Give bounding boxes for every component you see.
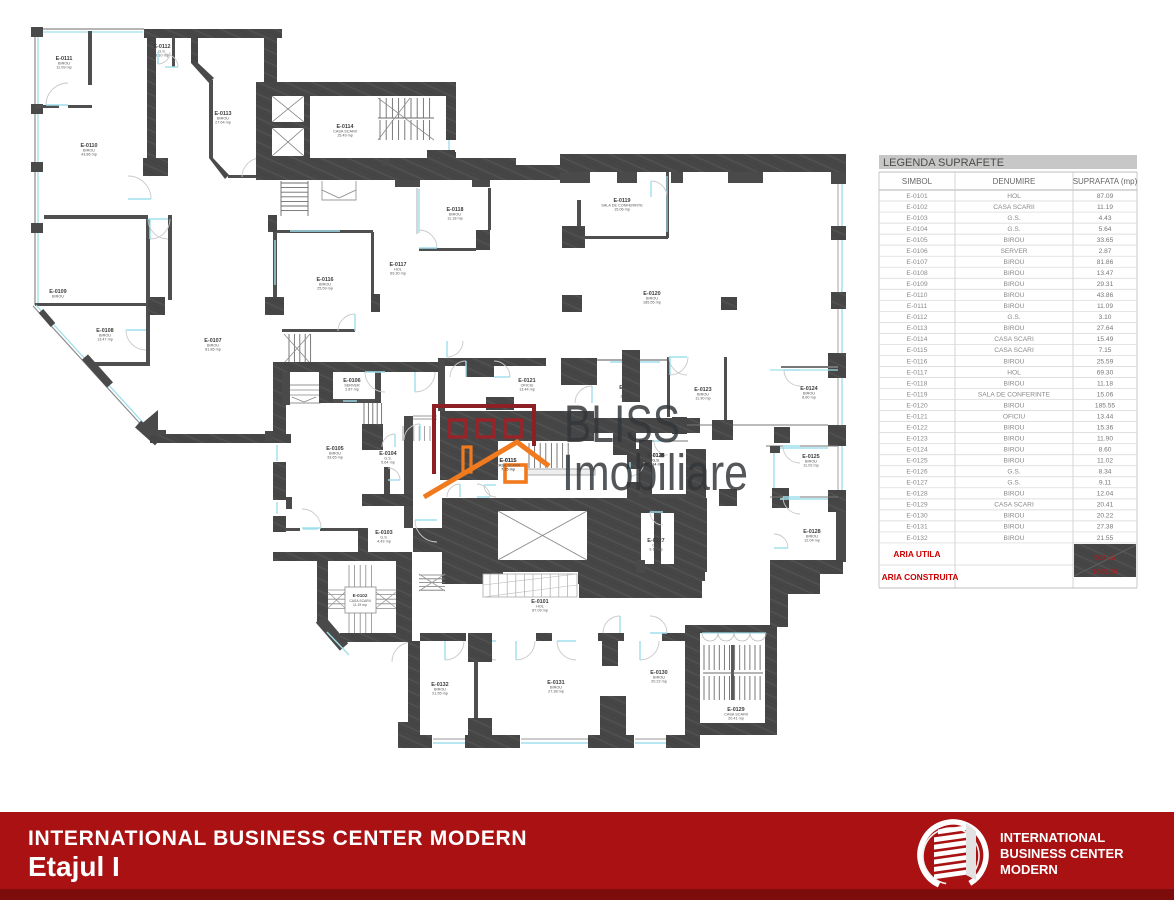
svg-text:69.30: 69.30 bbox=[1097, 369, 1114, 376]
svg-text:11.19: 11.19 bbox=[1097, 204, 1113, 211]
svg-text:15.06 mp: 15.06 mp bbox=[614, 208, 630, 212]
svg-text:BIROU: BIROU bbox=[1004, 524, 1025, 531]
svg-text:5.64 mp: 5.64 mp bbox=[381, 461, 395, 465]
svg-text:33.65: 33.65 bbox=[1097, 237, 1114, 244]
svg-text:2.87: 2.87 bbox=[1099, 248, 1112, 255]
svg-text:E-0108: E-0108 bbox=[906, 270, 928, 277]
svg-text:E-0116: E-0116 bbox=[907, 358, 928, 365]
svg-text:9.11: 9.11 bbox=[1099, 480, 1112, 487]
svg-text:20.41 mp: 20.41 mp bbox=[728, 717, 744, 721]
svg-text:BIROU: BIROU bbox=[1004, 292, 1025, 299]
svg-text:BIROU: BIROU bbox=[1004, 380, 1025, 387]
svg-text:13.47: 13.47 bbox=[1097, 270, 1114, 277]
svg-text:E-0124: E-0124 bbox=[906, 447, 928, 454]
svg-text:E-0123: E-0123 bbox=[906, 436, 928, 443]
svg-text:11.90 mp: 11.90 mp bbox=[695, 397, 711, 401]
svg-text:BIROU: BIROU bbox=[1004, 270, 1025, 277]
svg-text:BIROU: BIROU bbox=[52, 295, 64, 299]
svg-text:E-0115: E-0115 bbox=[907, 347, 928, 354]
svg-text:BUSINESS CENTER: BUSINESS CENTER bbox=[1000, 846, 1124, 861]
svg-text:E-0109: E-0109 bbox=[906, 281, 928, 288]
svg-text:E-0122: E-0122 bbox=[906, 425, 928, 432]
svg-text:11.02 mp: 11.02 mp bbox=[803, 464, 819, 468]
svg-text:G.S.: G.S. bbox=[1007, 314, 1020, 321]
svg-text:BIROU: BIROU bbox=[1004, 358, 1025, 365]
svg-text:21.55: 21.55 bbox=[1097, 535, 1114, 542]
svg-text:HOL: HOL bbox=[1007, 193, 1021, 200]
svg-text:G.S.: G.S. bbox=[1007, 226, 1020, 233]
svg-text:7.15 mp: 7.15 mp bbox=[501, 468, 515, 472]
svg-text:20.22: 20.22 bbox=[1097, 513, 1114, 520]
svg-text:15.06: 15.06 bbox=[1097, 391, 1114, 398]
svg-text:E-0125: E-0125 bbox=[906, 458, 928, 465]
svg-text:BIROU: BIROU bbox=[1004, 281, 1025, 288]
svg-text:13.44 mp: 13.44 mp bbox=[519, 388, 535, 392]
svg-text:BIROU: BIROU bbox=[1004, 436, 1025, 443]
svg-text:E-0126: E-0126 bbox=[906, 469, 928, 476]
svg-text:29.31: 29.31 bbox=[1097, 281, 1114, 288]
svg-text:BIROU: BIROU bbox=[1004, 303, 1025, 310]
svg-text:33.65 mp: 33.65 mp bbox=[327, 456, 343, 460]
svg-text:27.38 mp: 27.38 mp bbox=[548, 690, 564, 694]
svg-text:11.09 mp: 11.09 mp bbox=[56, 66, 72, 70]
svg-text:E-0106: E-0106 bbox=[906, 248, 928, 255]
svg-text:E-0127: E-0127 bbox=[906, 480, 928, 487]
svg-text:E-0104: E-0104 bbox=[906, 226, 928, 233]
svg-text:BIROU: BIROU bbox=[1004, 237, 1025, 244]
svg-text:E-0103: E-0103 bbox=[906, 215, 928, 222]
svg-text:43.86: 43.86 bbox=[1097, 292, 1114, 299]
svg-text:Etajul I: Etajul I bbox=[28, 851, 120, 882]
svg-text:HOL: HOL bbox=[1007, 369, 1021, 376]
svg-text:E-0120: E-0120 bbox=[906, 402, 928, 409]
svg-text:11.18: 11.18 bbox=[1097, 380, 1113, 387]
svg-text:BIROU: BIROU bbox=[1004, 491, 1025, 498]
svg-text:1065.26: 1065.26 bbox=[1092, 569, 1117, 576]
svg-text:SALA DE CONFERINTE: SALA DE CONFERINTE bbox=[978, 391, 1051, 398]
svg-text:E-0105: E-0105 bbox=[906, 237, 928, 244]
svg-text:81.86: 81.86 bbox=[1097, 259, 1114, 266]
svg-text:BIROU: BIROU bbox=[1004, 535, 1025, 542]
svg-text:8.34: 8.34 bbox=[1099, 469, 1112, 476]
svg-text:11.90: 11.90 bbox=[1097, 436, 1113, 443]
svg-text:G.S.: G.S. bbox=[1007, 215, 1020, 222]
svg-text:E-0101: E-0101 bbox=[906, 193, 928, 200]
svg-text:12.04 mp: 12.04 mp bbox=[804, 539, 820, 543]
svg-text:15.49 mp: 15.49 mp bbox=[337, 134, 353, 138]
svg-text:20.22 mp: 20.22 mp bbox=[651, 680, 667, 684]
svg-text:E-0128: E-0128 bbox=[906, 491, 928, 498]
svg-text:CASA SCARI: CASA SCARI bbox=[994, 502, 1034, 509]
svg-text:20.41: 20.41 bbox=[1097, 502, 1114, 509]
svg-text:27.38: 27.38 bbox=[1097, 524, 1114, 531]
svg-text:E-0132: E-0132 bbox=[906, 535, 928, 542]
svg-text:9.11 mp: 9.11 mp bbox=[649, 548, 662, 552]
svg-text:E-0117: E-0117 bbox=[907, 369, 928, 376]
svg-text:G.S.: G.S. bbox=[1007, 469, 1020, 476]
svg-text:87.09 mp: 87.09 mp bbox=[532, 609, 548, 613]
svg-text:13.44: 13.44 bbox=[1097, 413, 1114, 420]
svg-text:7.15: 7.15 bbox=[1099, 347, 1112, 354]
svg-text:BIROU: BIROU bbox=[1004, 325, 1025, 332]
svg-text:BIROU: BIROU bbox=[1004, 513, 1025, 520]
svg-text:27.64: 27.64 bbox=[1097, 325, 1114, 332]
svg-text:SUPRAFATA (mp): SUPRAFATA (mp) bbox=[1073, 177, 1138, 186]
svg-text:8.60 mp: 8.60 mp bbox=[802, 396, 816, 400]
svg-text:SERVER: SERVER bbox=[1001, 248, 1028, 255]
svg-text:15.36: 15.36 bbox=[1097, 425, 1114, 432]
svg-text:11.19 mp: 11.19 mp bbox=[353, 603, 367, 607]
svg-text:13.47 mp: 13.47 mp bbox=[97, 338, 113, 342]
svg-text:2.87 mp: 2.87 mp bbox=[345, 388, 359, 392]
svg-text:E-0111: E-0111 bbox=[907, 303, 928, 310]
svg-text:OFICIU: OFICIU bbox=[1003, 413, 1026, 420]
svg-text:15.49: 15.49 bbox=[1097, 336, 1114, 343]
svg-text:E-0131: E-0131 bbox=[906, 524, 928, 531]
svg-text:11.09: 11.09 bbox=[1097, 303, 1113, 310]
svg-text:E-0107: E-0107 bbox=[906, 259, 928, 266]
svg-text:CASA SCARI: CASA SCARI bbox=[994, 336, 1034, 343]
svg-text:ARIA UTILA: ARIA UTILA bbox=[893, 549, 940, 559]
svg-text:SIMBOL: SIMBOL bbox=[902, 177, 933, 186]
svg-text:8.60: 8.60 bbox=[1099, 447, 1112, 454]
svg-text:87.09: 87.09 bbox=[1097, 193, 1114, 200]
svg-text:4.43 mp: 4.43 mp bbox=[377, 540, 391, 544]
svg-text:MODERN: MODERN bbox=[1000, 862, 1058, 877]
svg-text:E-0118: E-0118 bbox=[907, 380, 928, 387]
svg-text:BIROU: BIROU bbox=[1004, 425, 1025, 432]
svg-text:81.86 mp: 81.86 mp bbox=[205, 348, 221, 352]
svg-text:185.55 mp: 185.55 mp bbox=[643, 301, 661, 305]
svg-text:INTERNATIONAL BUSINESS CENTER: INTERNATIONAL BUSINESS CENTER MODERN bbox=[28, 827, 527, 850]
svg-text:DENUMIRE: DENUMIRE bbox=[993, 177, 1036, 186]
svg-text:11.02: 11.02 bbox=[1097, 458, 1113, 465]
svg-text:43.86 mp: 43.86 mp bbox=[81, 153, 97, 157]
svg-text:4.43: 4.43 bbox=[1099, 215, 1112, 222]
svg-text:5.64: 5.64 bbox=[1099, 226, 1112, 233]
svg-text:CASA SCARII: CASA SCARII bbox=[993, 204, 1035, 211]
svg-text:E-0112: E-0112 bbox=[907, 314, 928, 321]
svg-text:E-0110: E-0110 bbox=[907, 292, 928, 299]
svg-text:E-0129: E-0129 bbox=[906, 502, 928, 509]
svg-text:ARIA CONSTRUITA: ARIA CONSTRUITA bbox=[882, 572, 959, 582]
svg-text:8.34 mp: 8.34 mp bbox=[649, 463, 663, 467]
svg-text:69.30 mp: 69.30 mp bbox=[390, 272, 406, 276]
svg-text:11.18 mp: 11.18 mp bbox=[447, 217, 463, 221]
svg-text:CASA SCARI: CASA SCARI bbox=[994, 347, 1034, 354]
svg-text:G.S.: G.S. bbox=[1007, 480, 1020, 487]
svg-text:21.55 mp: 21.55 mp bbox=[432, 692, 448, 696]
svg-text:3.10: 3.10 bbox=[1099, 314, 1112, 321]
svg-text:BIROU: BIROU bbox=[1004, 458, 1025, 465]
svg-text:25.59 mp: 25.59 mp bbox=[317, 287, 333, 291]
svg-text:BIROU: BIROU bbox=[1004, 447, 1025, 454]
svg-text:E-0113: E-0113 bbox=[907, 325, 928, 332]
svg-text:BIROU: BIROU bbox=[1004, 259, 1025, 266]
svg-text:E-0102: E-0102 bbox=[906, 204, 928, 211]
svg-text:E-0130: E-0130 bbox=[906, 513, 928, 520]
svg-text:25.59: 25.59 bbox=[1097, 358, 1114, 365]
svg-text:E-0102: E-0102 bbox=[353, 593, 368, 598]
svg-text:BIROU: BIROU bbox=[1004, 402, 1025, 409]
svg-text:E-0114: E-0114 bbox=[907, 336, 928, 343]
svg-text:E-0119: E-0119 bbox=[907, 391, 928, 398]
svg-text:E-0121: E-0121 bbox=[906, 413, 928, 420]
svg-text:185.55: 185.55 bbox=[1095, 402, 1116, 409]
svg-text:12.04: 12.04 bbox=[1097, 491, 1114, 498]
svg-text:27.64 mp: 27.64 mp bbox=[215, 121, 231, 125]
svg-text:INTERNATIONAL: INTERNATIONAL bbox=[1000, 830, 1105, 845]
svg-text:LEGENDA SUPRAFETE: LEGENDA SUPRAFETE bbox=[883, 157, 1004, 169]
